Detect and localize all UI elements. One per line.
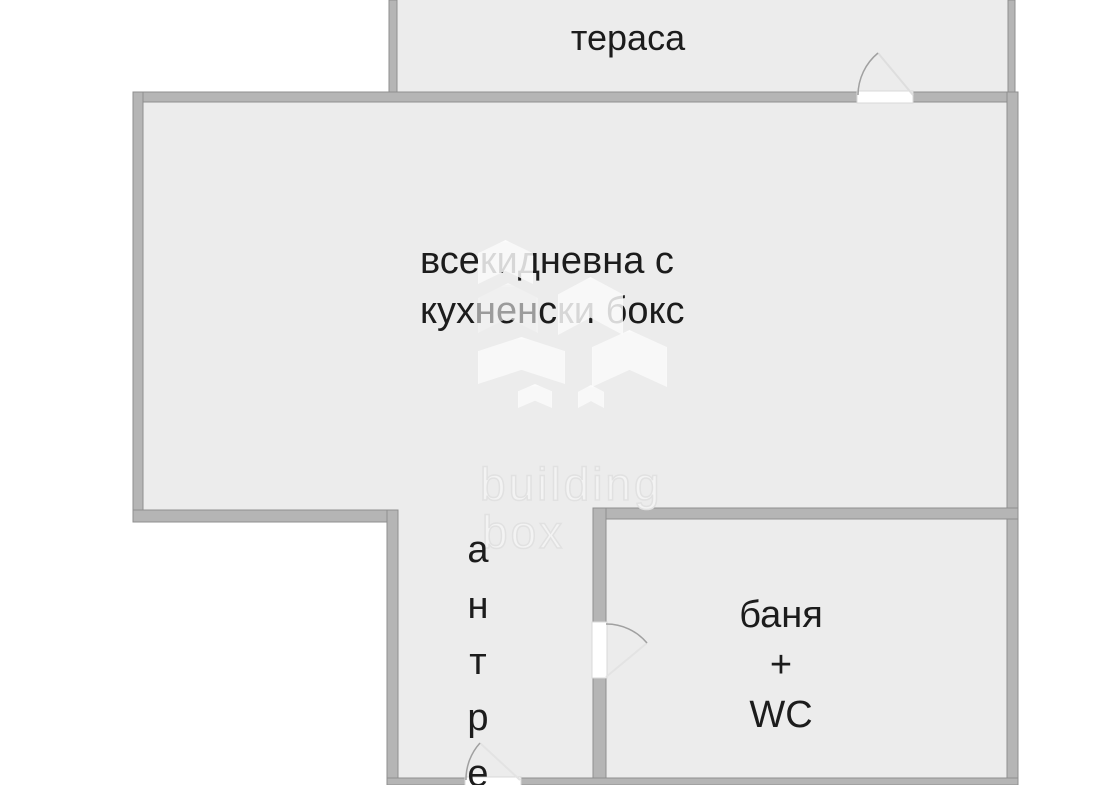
terrace-door-opening <box>857 91 913 103</box>
wall-main-right <box>1007 92 1018 785</box>
room-label-hallway: антре <box>459 529 497 785</box>
wall-hallway-left <box>387 510 398 785</box>
terrace-floor <box>397 0 1008 92</box>
floorplan: building box тераса всекидневна с кухнен… <box>0 0 1120 785</box>
wall-living-bottom <box>133 510 398 522</box>
room-label-bathroom-line2: + <box>739 640 823 690</box>
room-label-bathroom-line3: WC <box>739 690 823 740</box>
wall-terrace-left <box>389 0 397 92</box>
room-label-living-line1: всекидневна с <box>420 236 685 286</box>
room-label-terrace: тераса <box>571 17 685 59</box>
room-label-bathroom-line1: баня <box>739 590 823 640</box>
watermark-text-building: building <box>480 457 663 511</box>
wall-main-left <box>133 92 143 522</box>
wall-terrace-right <box>1008 0 1015 92</box>
room-label-living: всекидневна с кухненски бокс <box>420 236 685 336</box>
bathroom-door-opening <box>592 622 607 678</box>
floorplan-drawing <box>0 0 1120 785</box>
room-label-bathroom: баня + WC <box>739 590 823 740</box>
room-label-living-line2: кухненски бокс <box>420 286 685 336</box>
